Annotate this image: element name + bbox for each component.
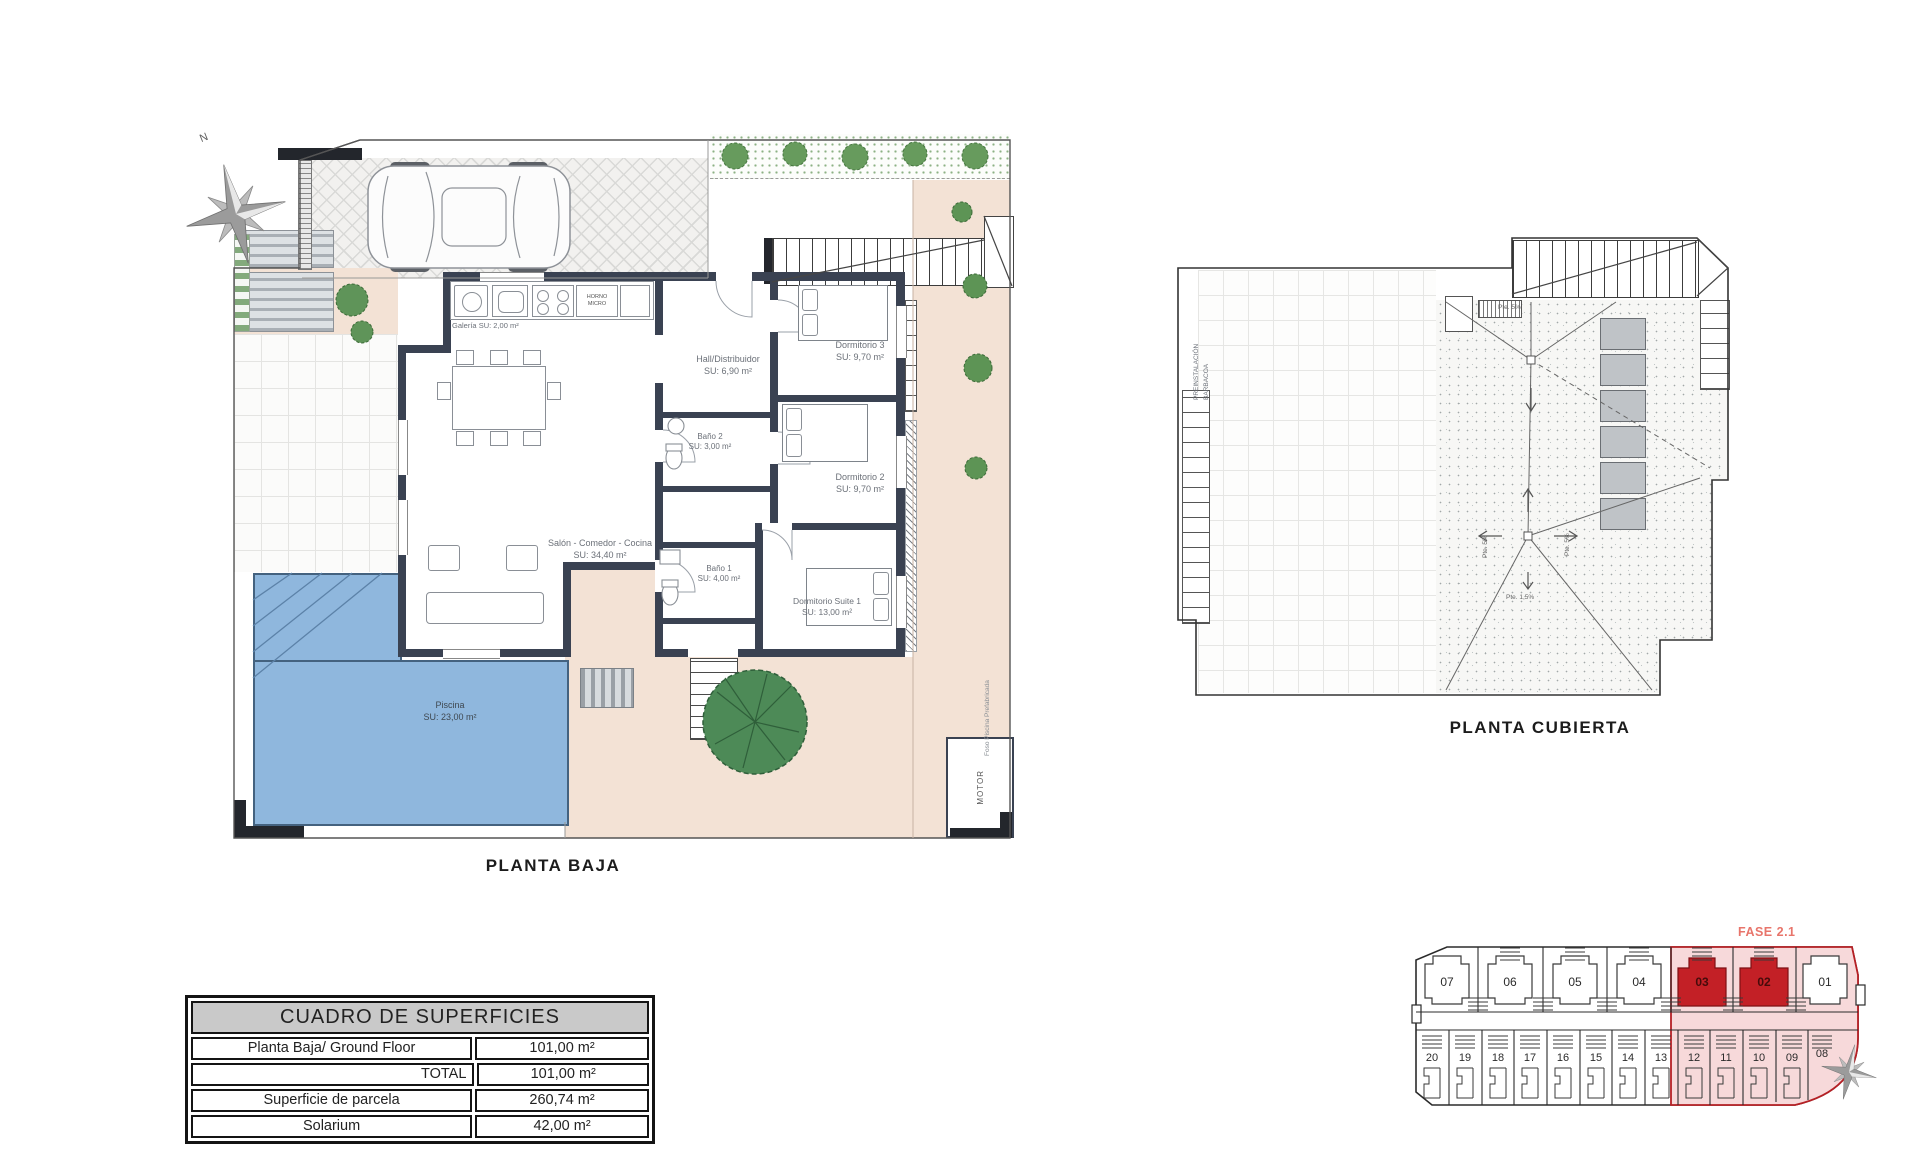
unit-07: 07	[1433, 975, 1461, 989]
armchair	[428, 545, 460, 571]
sofa	[426, 592, 544, 624]
armchair	[506, 545, 538, 571]
terrace-plant-icon	[703, 670, 807, 774]
unit-16: 16	[1550, 1052, 1576, 1064]
room-label-hall: Hall/Distribuidor SU: 6,90 m²	[668, 354, 788, 377]
chair	[437, 382, 451, 400]
room-label-piscina: Piscina SU: 23,00 m²	[380, 700, 520, 723]
unit-11: 11	[1713, 1052, 1739, 1064]
unit-04: 04	[1625, 975, 1653, 989]
chair	[456, 350, 474, 365]
slope-label-right: Pte. 5%	[1564, 510, 1576, 556]
unit-18: 18	[1485, 1052, 1511, 1064]
unit-13: 13	[1648, 1052, 1674, 1064]
bed-dorm3	[798, 285, 888, 341]
foso-label: Foso Piscina Prefabricada	[984, 660, 1002, 756]
slope-label-top: Pte. 5%	[1498, 304, 1548, 311]
fridge-icon	[620, 285, 650, 317]
barbacoa-label: PREINSTALACIÓN BARBACOA	[1192, 296, 1220, 400]
slope-label-left: Pte. 5%	[1482, 512, 1494, 558]
table-row: Superficie de parcela 260,74 m²	[191, 1089, 649, 1112]
compass-icon	[174, 152, 297, 275]
oven-cell: HORNO MICRO	[576, 285, 618, 317]
hob-icon	[532, 285, 574, 317]
table-row: Planta Baja/ Ground Floor 101,00 m²	[191, 1037, 649, 1060]
unit-17: 17	[1517, 1052, 1543, 1064]
sink-icon	[492, 285, 528, 317]
roof-ridges	[1446, 302, 1710, 690]
room-label-bano2: Baño 2 SU: 3,00 m²	[668, 432, 752, 453]
chair	[523, 350, 541, 365]
car-icon	[368, 162, 570, 272]
row-label: Planta Baja/ Ground Floor	[191, 1037, 472, 1060]
row-label: TOTAL	[191, 1063, 474, 1086]
unit-20: 20	[1419, 1052, 1445, 1064]
room-label-dorm2: Dormitorio 2 SU: 9,70 m²	[800, 472, 920, 495]
room-label-galeria: Galería SU: 2,00 m²	[452, 321, 522, 331]
unit-03: 03	[1688, 975, 1716, 989]
unit-12: 12	[1681, 1052, 1707, 1064]
roof-title: PLANTA CUBIERTA	[1430, 718, 1650, 738]
table-row: TOTAL 101,00 m²	[191, 1063, 649, 1086]
roof-drain-arrows	[1479, 388, 1577, 589]
bed-dorm2	[782, 404, 868, 462]
row-value: 42,00 m²	[475, 1115, 649, 1138]
unit-05: 05	[1561, 975, 1589, 989]
unit-10: 10	[1746, 1052, 1772, 1064]
terrace-bushes-icon	[952, 202, 992, 479]
dining-table	[452, 366, 546, 430]
unit-15: 15	[1583, 1052, 1609, 1064]
chair	[547, 382, 561, 400]
ground-floor-title: PLANTA BAJA	[453, 856, 653, 876]
chair	[490, 350, 508, 365]
hedge-bushes-icon	[722, 142, 988, 170]
plan-sheet: MOTOR	[0, 0, 1920, 1161]
row-label: Superficie de parcela	[191, 1089, 472, 1112]
phase-label: FASE 2.1	[1738, 925, 1796, 939]
slope-label-bottom: Pte. 1,5%	[1506, 594, 1556, 601]
room-label-dorm3: Dormitorio 3 SU: 9,70 m²	[800, 340, 920, 363]
oven-label: HORNO MICRO	[577, 294, 617, 307]
unit-06: 06	[1496, 975, 1524, 989]
row-value: 260,74 m²	[475, 1089, 649, 1112]
room-label-suite: Dormitorio Suite 1 SU: 13,00 m²	[765, 596, 889, 618]
row-value: 101,00 m²	[477, 1063, 649, 1086]
unit-02: 02	[1750, 975, 1778, 989]
washer-icon	[454, 285, 488, 317]
unit-01: 01	[1811, 975, 1839, 989]
chair	[490, 431, 508, 446]
table-row: Solarium 42,00 m²	[191, 1115, 649, 1138]
chair	[523, 431, 541, 446]
surface-table: CUADRO DE SUPERFICIES Planta Baja/ Groun…	[185, 995, 655, 1144]
row-value: 101,00 m²	[475, 1037, 649, 1060]
pool-steps	[253, 573, 382, 678]
unit-09: 09	[1779, 1052, 1805, 1064]
room-label-bano1: Baño 1 SU: 4,00 m²	[682, 564, 756, 585]
site-plan-vectors	[1412, 947, 1882, 1105]
unit-14: 14	[1615, 1052, 1641, 1064]
patio-plants-icon	[336, 284, 373, 343]
row-label: Solarium	[191, 1115, 472, 1138]
chair	[456, 431, 474, 446]
unit-19: 19	[1452, 1052, 1478, 1064]
surface-table-title: CUADRO DE SUPERFICIES	[191, 1001, 649, 1034]
unit-08: 08	[1809, 1048, 1835, 1060]
room-label-salon: Salón - Comedor - Cocina SU: 34,40 m²	[535, 538, 665, 561]
